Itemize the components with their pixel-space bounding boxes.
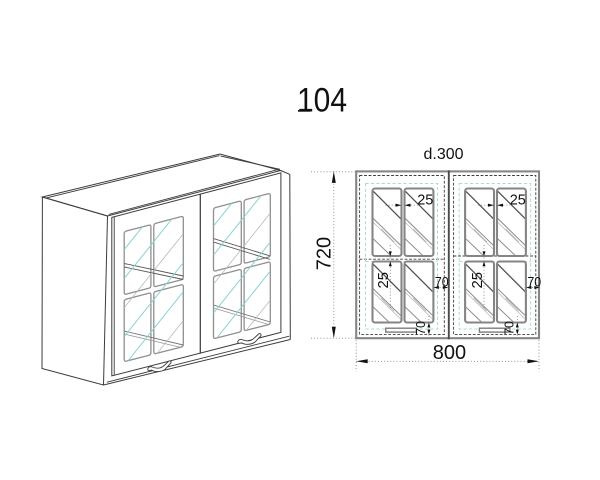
svg-text:104: 104 bbox=[297, 82, 347, 120]
svg-text:25: 25 bbox=[510, 193, 526, 209]
svg-text:70: 70 bbox=[435, 273, 449, 289]
svg-text:25: 25 bbox=[417, 193, 433, 209]
svg-text:70: 70 bbox=[527, 273, 541, 289]
svg-text:720: 720 bbox=[313, 237, 335, 270]
svg-text:70: 70 bbox=[414, 321, 428, 335]
svg-text:70: 70 bbox=[503, 321, 517, 335]
svg-text:800: 800 bbox=[433, 342, 466, 364]
svg-text:25: 25 bbox=[470, 272, 486, 288]
svg-text:d.300: d.300 bbox=[423, 146, 463, 163]
svg-text:25: 25 bbox=[376, 272, 392, 288]
